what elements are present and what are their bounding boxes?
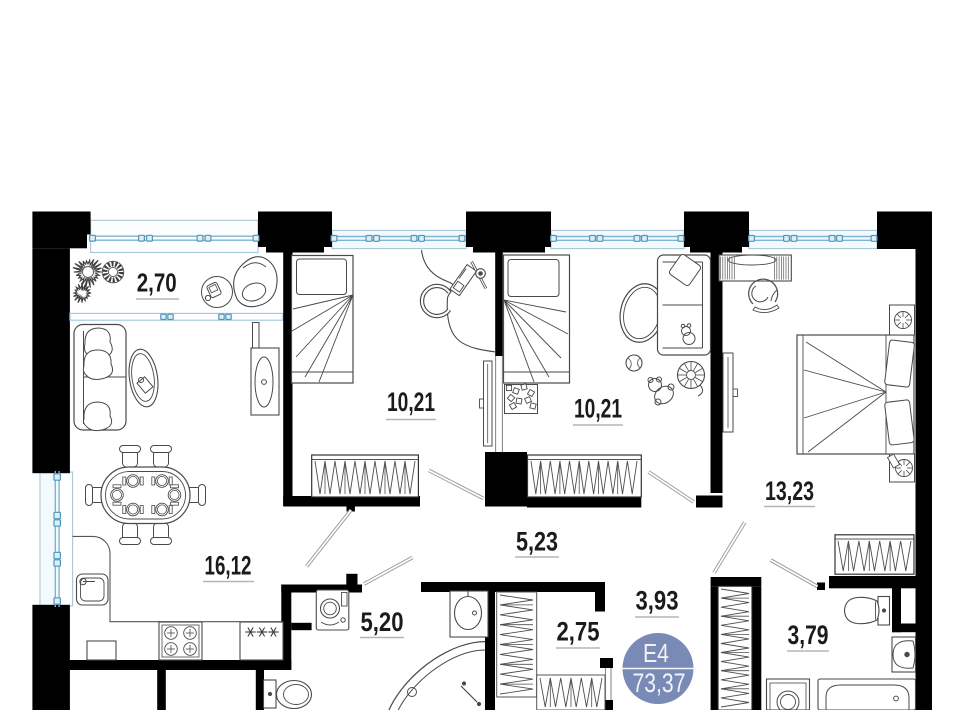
svg-text:3,79: 3,79: [788, 620, 829, 650]
svg-text:3,93: 3,93: [636, 586, 679, 616]
svg-text:2,75: 2,75: [557, 617, 600, 647]
svg-text:E4: E4: [643, 638, 669, 668]
svg-text:73,37: 73,37: [633, 668, 686, 698]
svg-text:10,21: 10,21: [387, 387, 435, 417]
svg-text:10,21: 10,21: [574, 394, 622, 424]
svg-text:16,12: 16,12: [205, 551, 252, 581]
svg-text:2,70: 2,70: [137, 267, 177, 297]
svg-text:13,23: 13,23: [765, 476, 814, 506]
svg-text:5,20: 5,20: [361, 607, 404, 637]
svg-text:5,23: 5,23: [516, 527, 558, 557]
